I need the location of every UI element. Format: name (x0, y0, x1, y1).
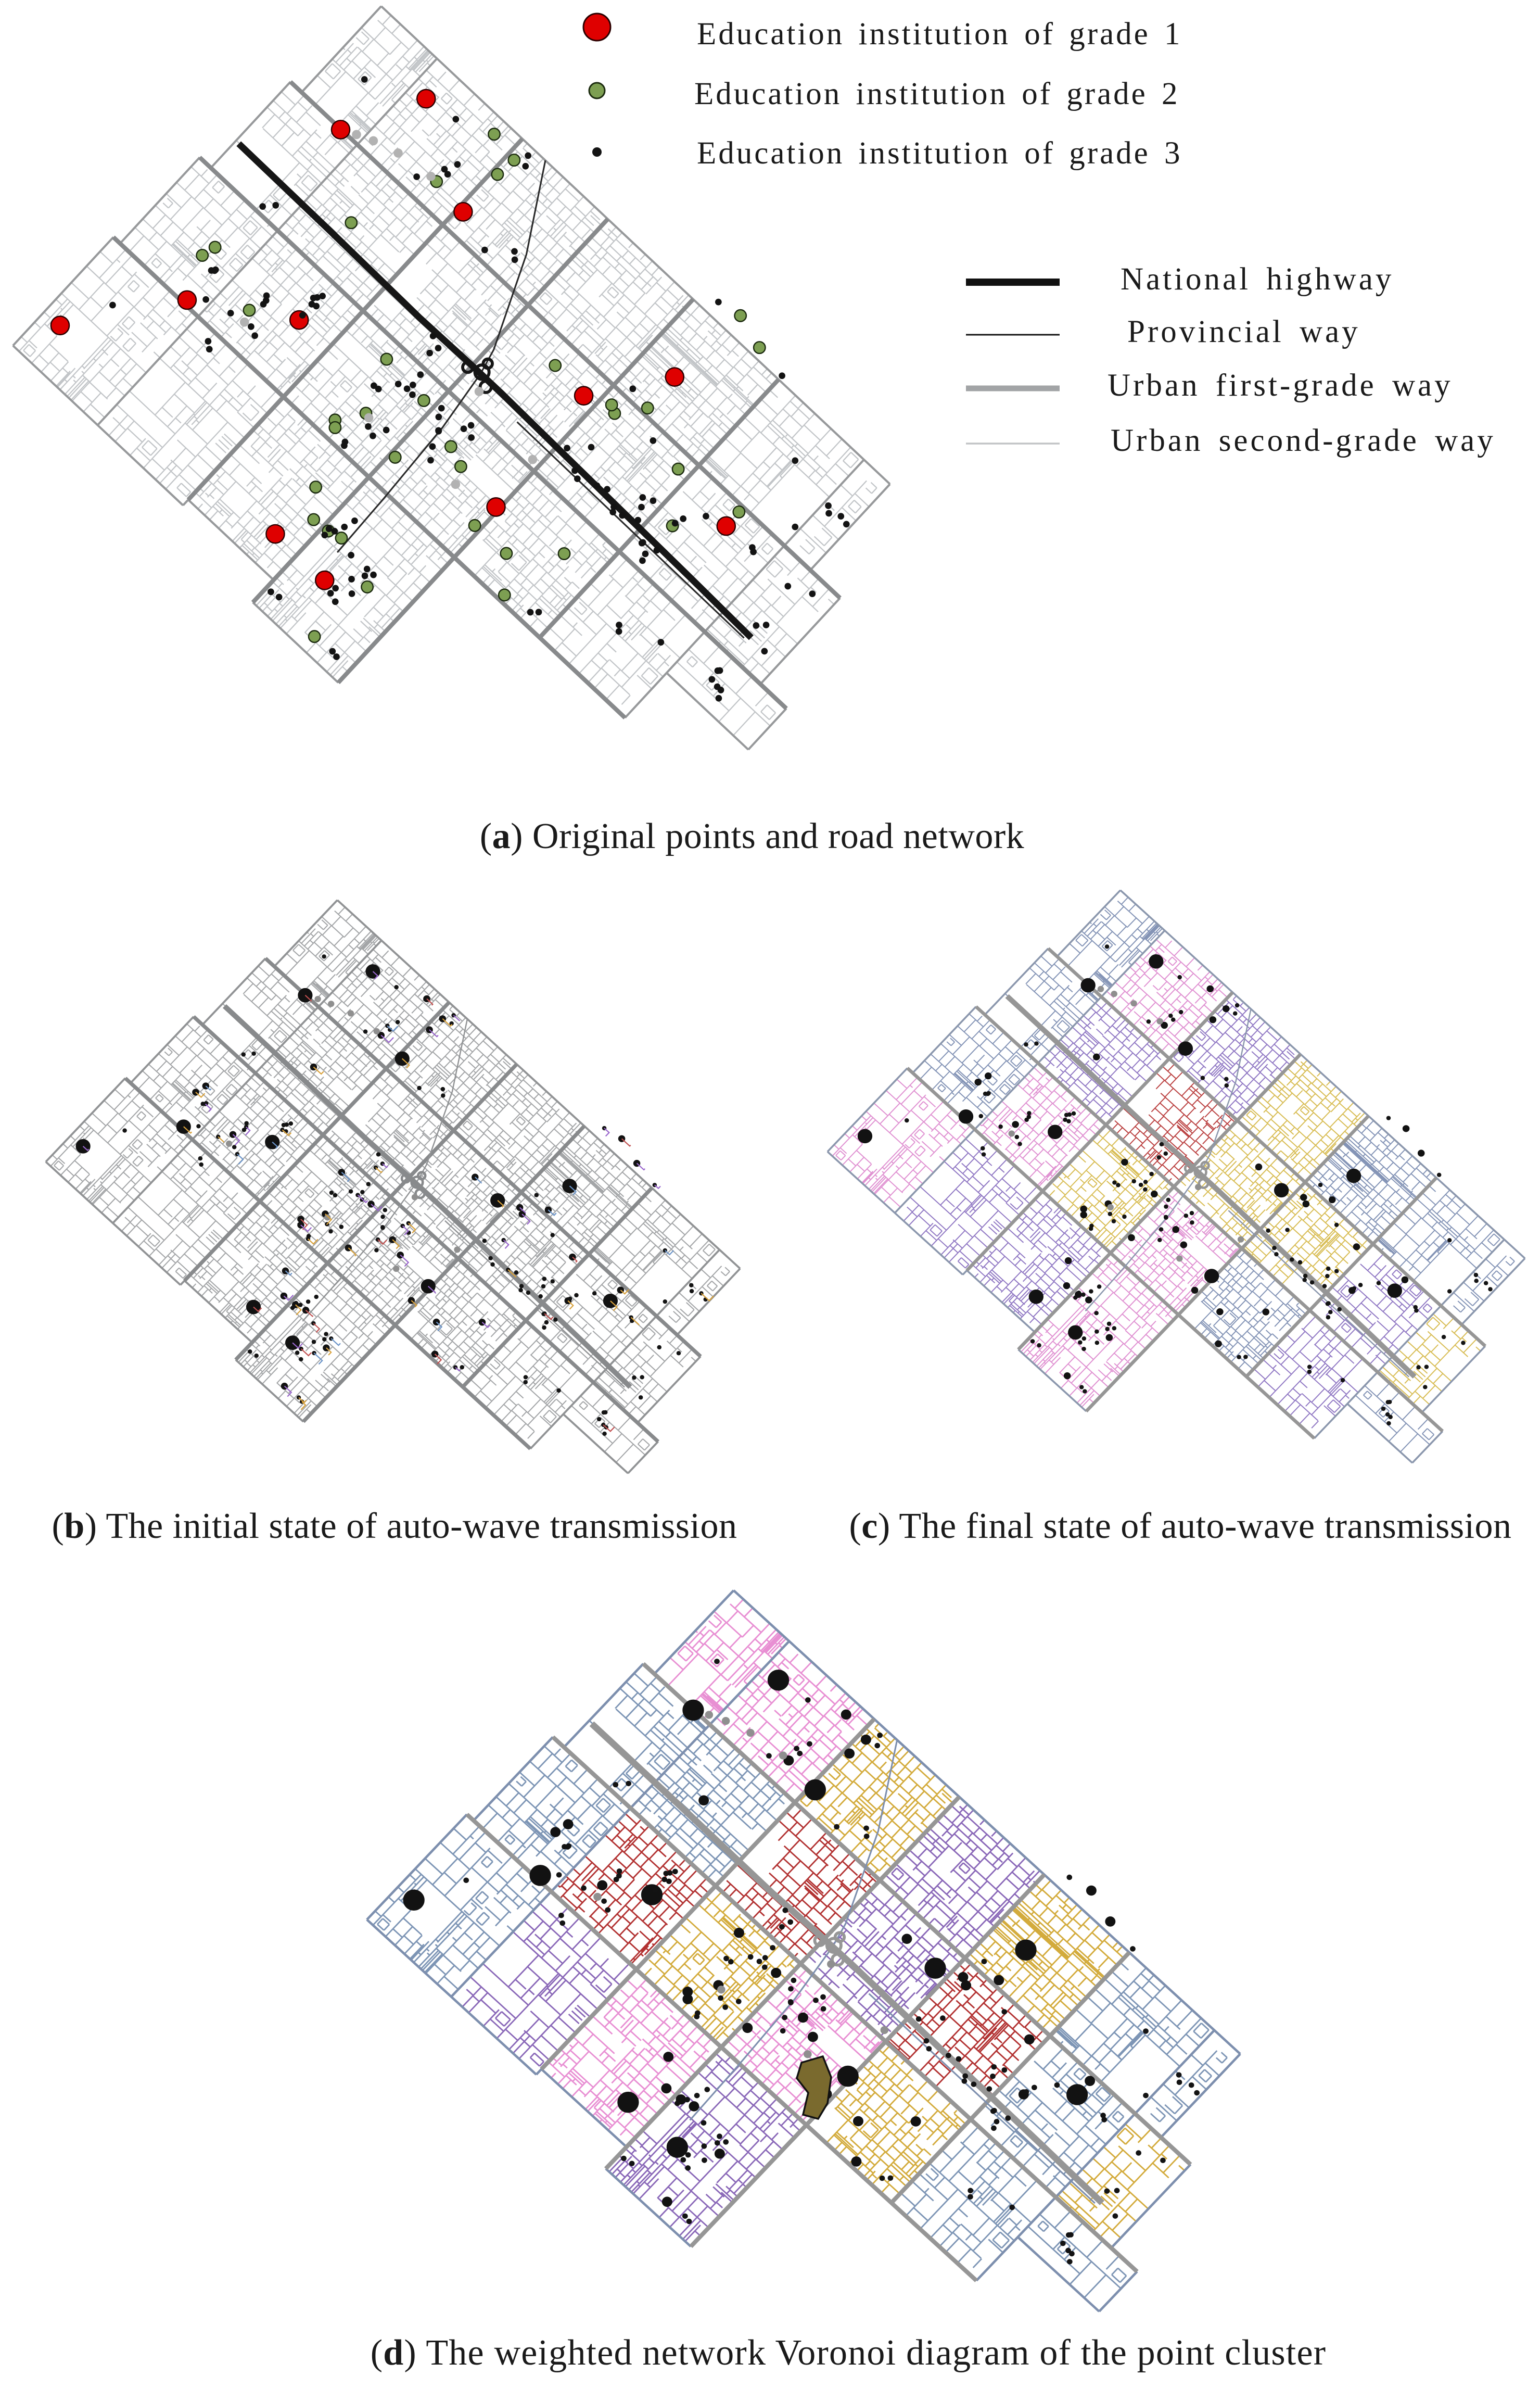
svg-text:(b) The initial state of auto-: (b) The initial state of auto-wave trans… (52, 1506, 737, 1546)
svg-text:Education institution of grade: Education institution of grade 2 (694, 77, 1180, 111)
svg-text:Urban second-grade way: Urban second-grade way (1111, 423, 1496, 458)
svg-text:Education institution of grade: Education institution of grade 1 (697, 17, 1182, 52)
svg-text:(c) The final state of auto-wa: (c) The final state of auto-wave transmi… (849, 1506, 1511, 1546)
svg-text:Provincial way: Provincial way (1127, 314, 1360, 349)
svg-text:(d) The weighted network Voron: (d) The weighted network Voronoi diagram… (371, 2333, 1326, 2373)
svg-text:Urban first-grade way: Urban first-grade way (1108, 368, 1453, 403)
svg-text:(a) Original points and road n: (a) Original points and road network (480, 816, 1024, 856)
svg-text:Education institution of grade: Education institution of grade 3 (697, 136, 1182, 171)
svg-text:National highway: National highway (1121, 262, 1394, 297)
